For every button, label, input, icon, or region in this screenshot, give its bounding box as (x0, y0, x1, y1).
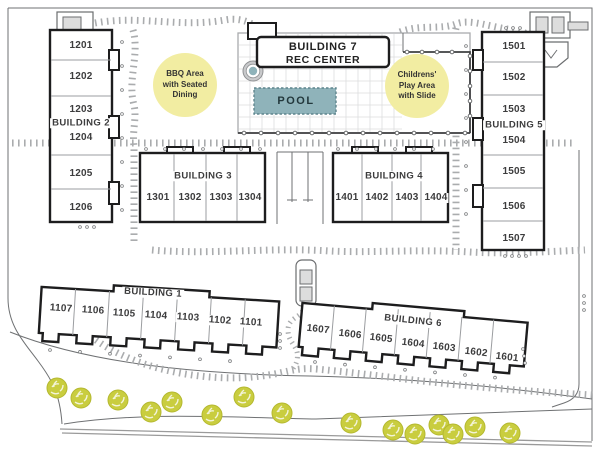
tree-icon (443, 424, 463, 444)
building-6-outline (298, 297, 528, 374)
tree-icon (202, 405, 222, 425)
tree-icon (405, 424, 425, 444)
tree-icon (108, 390, 128, 410)
rec-center-label-box (257, 37, 389, 67)
tree-icon (383, 420, 403, 440)
building-1-outline (38, 281, 279, 355)
building-5-outline (473, 32, 544, 250)
tree-icon (465, 417, 485, 437)
pool (254, 88, 336, 114)
tree-icon (141, 402, 161, 422)
parking-stalls (277, 152, 323, 224)
tree-icon (500, 423, 520, 443)
site-plan-linework (0, 0, 600, 451)
mail-kiosk (296, 260, 316, 306)
tree-icon (71, 388, 91, 408)
tree-icon (234, 387, 254, 407)
tree-icon (47, 378, 67, 398)
building-4-outline (333, 147, 448, 222)
tree-icon (341, 413, 361, 433)
rec-center-deck (238, 23, 472, 135)
tree-icon (272, 403, 292, 423)
tree-icon (162, 392, 182, 412)
building-2-outline (50, 30, 119, 222)
site-plan: BBQ Area with Seated Dining Childrens' P… (0, 0, 600, 451)
building-3-outline (140, 147, 265, 222)
